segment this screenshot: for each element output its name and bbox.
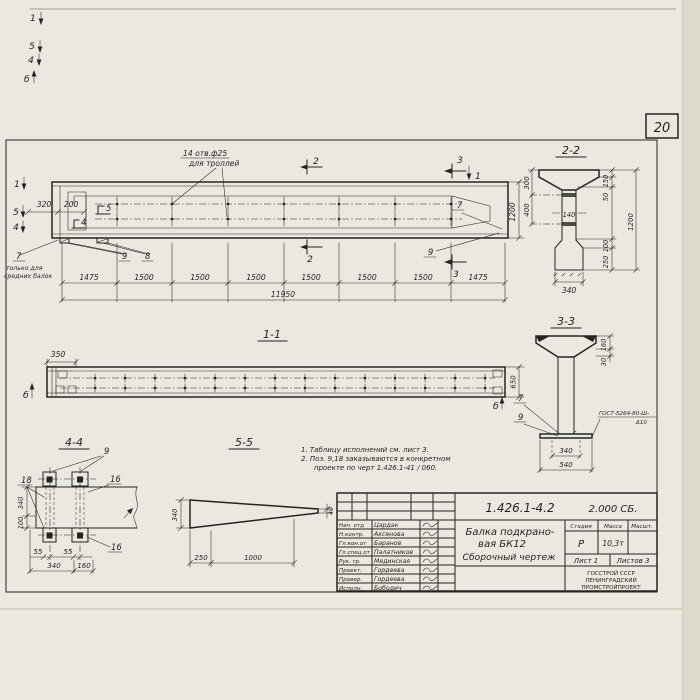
arrow-up-icon (500, 397, 505, 404)
cut4-inside-label: 4 (81, 217, 86, 227)
hole-center-lines (95, 204, 462, 219)
callout-16r-leader (88, 484, 121, 492)
sheets-label: Листов 3 (616, 557, 650, 565)
cut1-right-label: 1 (475, 171, 481, 182)
note-line2: 2. Поз. 9,18 заказываются в конкретном (301, 455, 451, 463)
cut-label: 2 (307, 254, 313, 265)
arrow-left-icon (300, 244, 308, 249)
arrow-up-right-icon (127, 508, 133, 514)
mark-b-left: б (23, 390, 29, 401)
cut-label: 2 (313, 156, 319, 167)
drawing-sheet: 20 1 5 4 б 14 отв.ф25 для троллей (0, 0, 700, 700)
hole-note-leaders (173, 168, 227, 217)
ground-hatch (554, 273, 581, 276)
dim-seg-0: 1475 (79, 273, 98, 282)
dim-seg-7: 1475 (468, 273, 487, 282)
dim-250: 250 (602, 256, 610, 269)
section-3-3: 3-3 160 30 7 9 ГОСТ-5264-80-Ш- Δ10 340 5… (514, 315, 656, 473)
dim-seg-6: 1500 (413, 273, 432, 282)
margin-mark-1: 1 (30, 13, 36, 24)
flange-corner-pad-left (536, 336, 550, 342)
dim-340: 340 (562, 286, 577, 295)
section-4-4: 4-4 9 18 16 16 340 100 55 55 340 160 (17, 436, 137, 574)
dim-250: 250 (194, 554, 208, 562)
dim-seg-2: 1500 (190, 273, 209, 282)
plan-hole-ticks (95, 374, 485, 392)
doc-title-line1: Балка подкрано- (465, 527, 554, 538)
note-line1: 1. Таблицу исполнений см. лист 3. (301, 446, 429, 454)
dim-350-line (45, 359, 79, 367)
dim-100: 100 (602, 240, 610, 253)
sheet-label: Лист 1 (573, 557, 598, 565)
drawing-canvas: 20 1 5 4 б 14 отв.ф25 для троллей (0, 0, 700, 700)
bolt-head (77, 533, 83, 539)
dim-150: 150 (602, 175, 610, 188)
note-line3: проекте по черт 1.426.1-41 / 060. (314, 464, 437, 472)
row-name: Мединская (374, 558, 410, 565)
beam-outline (52, 182, 508, 238)
dim-340: 340 (559, 447, 573, 455)
left-note-line2: средних балок (4, 272, 52, 280)
row-role: Проект. (339, 568, 362, 574)
bearing-pad-hatch (61, 239, 107, 242)
row-name: Палатников (374, 549, 413, 556)
elevation-view: 14 отв.ф25 для троллей 2 2 3 3 1 (4, 149, 524, 303)
callout-9-right-leader (424, 233, 499, 257)
dim-seg-1: 1500 (134, 273, 153, 282)
bolt-head (47, 533, 53, 539)
margin-marks: 1 5 4 б (24, 12, 43, 85)
row-role: Нач. отд (339, 523, 364, 529)
web (558, 357, 574, 434)
signature (423, 586, 437, 590)
weld-band-bottom (562, 222, 576, 226)
arrow-up-icon (30, 383, 35, 390)
callout-9: 9 (104, 446, 109, 456)
bolt-head (47, 477, 53, 483)
section-title: 2-2 (562, 144, 580, 157)
arrow-up-icon (32, 70, 37, 77)
callout-9: 9 (518, 412, 523, 422)
dim-300: 300 (523, 176, 531, 190)
dim-55-1: 55 (34, 548, 43, 556)
dim-340-line (553, 272, 586, 286)
signature (423, 523, 437, 527)
signature (423, 541, 437, 545)
callout-8-left: 8 (145, 251, 150, 261)
signature (423, 559, 437, 563)
mass-label: Масса (604, 524, 622, 530)
dim-seg-3: 1500 (246, 273, 265, 282)
cut-mark-3-bottom: 3 (444, 255, 466, 280)
callout-9-left: 9 (122, 251, 127, 261)
section-title: 3-3 (557, 315, 575, 328)
bottom-block (555, 240, 583, 270)
frame-border (6, 140, 657, 592)
doc-title-line3: Сборочный чертеж (463, 552, 557, 563)
arrow-down-icon (22, 184, 27, 191)
hole-note-line2: для троллей (188, 159, 239, 168)
plan-outline (47, 367, 505, 397)
row-name: Цардак (374, 522, 399, 529)
dim-50: 50 (602, 193, 610, 201)
arrow-left-icon (444, 259, 452, 264)
dim-40: 40 (328, 507, 335, 515)
paper-right-margin (684, 0, 700, 700)
arrow-down-icon (38, 47, 43, 54)
arrow-left-icon (444, 168, 452, 173)
dim-650: 650 (510, 375, 518, 389)
cut-label: 3 (457, 155, 463, 166)
org-line2: ЛЕНИНГРАДСКИЙ (585, 577, 637, 584)
dim-320: 320 (37, 200, 52, 209)
stage-value: Р (578, 539, 585, 550)
dim-200: 200 (64, 200, 79, 209)
margin-mark-b: б (24, 74, 30, 85)
dim-340: 340 (47, 562, 61, 570)
callout-9-leaders (66, 243, 130, 261)
margin-mark-4: 4 (28, 55, 34, 66)
callout-18: 18 (21, 475, 32, 485)
dim-seg-5: 1500 (357, 273, 376, 282)
weld-ref-lines (530, 195, 562, 224)
callout-7-right-leader (452, 210, 502, 229)
weld-note-line1: ГОСТ-5264-80-Ш- (599, 411, 649, 417)
scale-label: Масшт. (631, 524, 653, 530)
signature (423, 568, 437, 572)
plan-walls (47, 367, 505, 397)
doc-code: 2.000 СБ. (589, 504, 638, 515)
callout-9-leaders (53, 456, 104, 471)
margin-mark-5: 5 (29, 41, 35, 52)
row-role: Гл.спец.от (339, 550, 371, 556)
org-line1: ГОССТРОЙ СССР (587, 570, 635, 577)
arrow-down-icon (467, 174, 472, 181)
mark-b-right: б (493, 401, 499, 412)
row-name: Гордеева (374, 576, 405, 583)
top-flange (536, 336, 596, 357)
callout-16-bottom: 16 (111, 542, 122, 552)
arrow-left-icon (300, 164, 308, 169)
dim-1200: 1200 (627, 213, 635, 231)
sheet-number: 20 (654, 121, 671, 136)
dim-1000: 1000 (244, 554, 262, 562)
cut-mark-2-bottom: 2 (300, 240, 322, 265)
row-name: Баранов (374, 540, 402, 547)
doc-number: 1.426.1-4.2 (485, 501, 554, 515)
callout-16-right: 16 (110, 474, 121, 484)
bolt-head (77, 477, 83, 483)
callout-9-right: 9 (428, 247, 433, 257)
org-line3: ПРОМСТРОЙПРОЕКТ (582, 584, 642, 591)
dim-chain-line (60, 281, 508, 286)
plan-hole-dots (95, 378, 485, 388)
arrow-down-icon (39, 19, 44, 26)
dim-total: 11950 (271, 290, 295, 299)
taper-plate (190, 500, 318, 528)
section-2-2: 2-2 300 400 140 150 50 100 250 1200 340 (523, 144, 640, 295)
cut-mark-3-top: 3 (444, 155, 466, 178)
section-title: 5-5 (235, 436, 253, 449)
callout-9-leader (514, 422, 558, 436)
section-title: 1-1 (263, 328, 281, 341)
paper-edges (0, 0, 700, 700)
arrow-down-icon (21, 227, 26, 234)
callout-7-left: 7 (16, 251, 22, 261)
dim-540: 540 (559, 461, 573, 469)
mass-value: 10,3т (602, 539, 624, 548)
dim-400: 400 (523, 203, 531, 217)
signature (423, 532, 437, 536)
row-role: Провер. (339, 577, 362, 583)
row-role: Исполн. (339, 586, 363, 592)
hole-ticks (117, 197, 451, 226)
dim-160: 160 (77, 562, 91, 570)
cut1-left-label: 1 (14, 179, 20, 190)
hole-note-line1: 14 отв.ф25 (183, 149, 227, 158)
bolt-hidden-lines (46, 487, 84, 528)
dim-320-200-line (26, 210, 87, 215)
arrow-down-icon (37, 60, 42, 67)
row-name: Аксенова (373, 531, 405, 538)
signature-rows: Нач. отд Цардак Н.контр. Аксенова Гл.кон… (339, 522, 437, 592)
cut5-inside-label: 5 (106, 203, 111, 213)
cut-label: 3 (453, 269, 459, 280)
signature (423, 577, 437, 581)
flange-corner-pad-right (582, 336, 596, 342)
notes: 1. Таблицу исполнений см. лист 3. 2. Поз… (301, 446, 451, 472)
weld-band-top (562, 193, 576, 197)
callout-7-right: 7 (457, 200, 463, 210)
dim-1200: 1200 (508, 202, 517, 221)
cut4-margin-label: 4 (13, 222, 19, 233)
section-title: 4-4 (65, 436, 83, 449)
dim-340: 340 (171, 509, 179, 522)
doc-title-line2: вая БК12 (478, 539, 526, 550)
dim-340-left: 340 (17, 497, 25, 510)
arrow-down-icon (21, 212, 26, 219)
dim-160: 160 (600, 339, 608, 352)
dim-140: 140 (563, 211, 576, 219)
cut-mark-2-top: 2 (300, 156, 322, 174)
band-outline (36, 487, 137, 528)
stage-label: Стадия (570, 524, 592, 530)
plan-end-notches (56, 370, 502, 394)
break-line (134, 487, 138, 528)
row-name: Бободич (374, 584, 402, 592)
row-name: Гордеева (374, 567, 405, 574)
dim-100: 100 (17, 517, 25, 530)
section-1-1: 1-1 350 650 б б (23, 328, 524, 412)
row-role: Гл.кон.от (339, 541, 367, 547)
title-block: 1.426.1-4.2 2.000 СБ. Балка подкрано- ва… (337, 493, 657, 592)
dim-350: 350 (51, 350, 66, 359)
dim-30: 30 (600, 358, 608, 366)
dim-55-2: 55 (64, 548, 73, 556)
weld-note-line2: Δ10 (635, 420, 647, 426)
cut5-margin-label: 5 (13, 207, 19, 218)
beam-panel-lines (86, 196, 452, 228)
beam-flange-lines (52, 186, 508, 234)
dim-seg-4: 1500 (301, 273, 320, 282)
signature (423, 550, 437, 554)
left-note-line1: только для (6, 265, 43, 272)
row-role: Рук. гр. (339, 559, 361, 565)
row-role: Н.контр. (339, 532, 364, 538)
bottom-plate (540, 434, 592, 438)
